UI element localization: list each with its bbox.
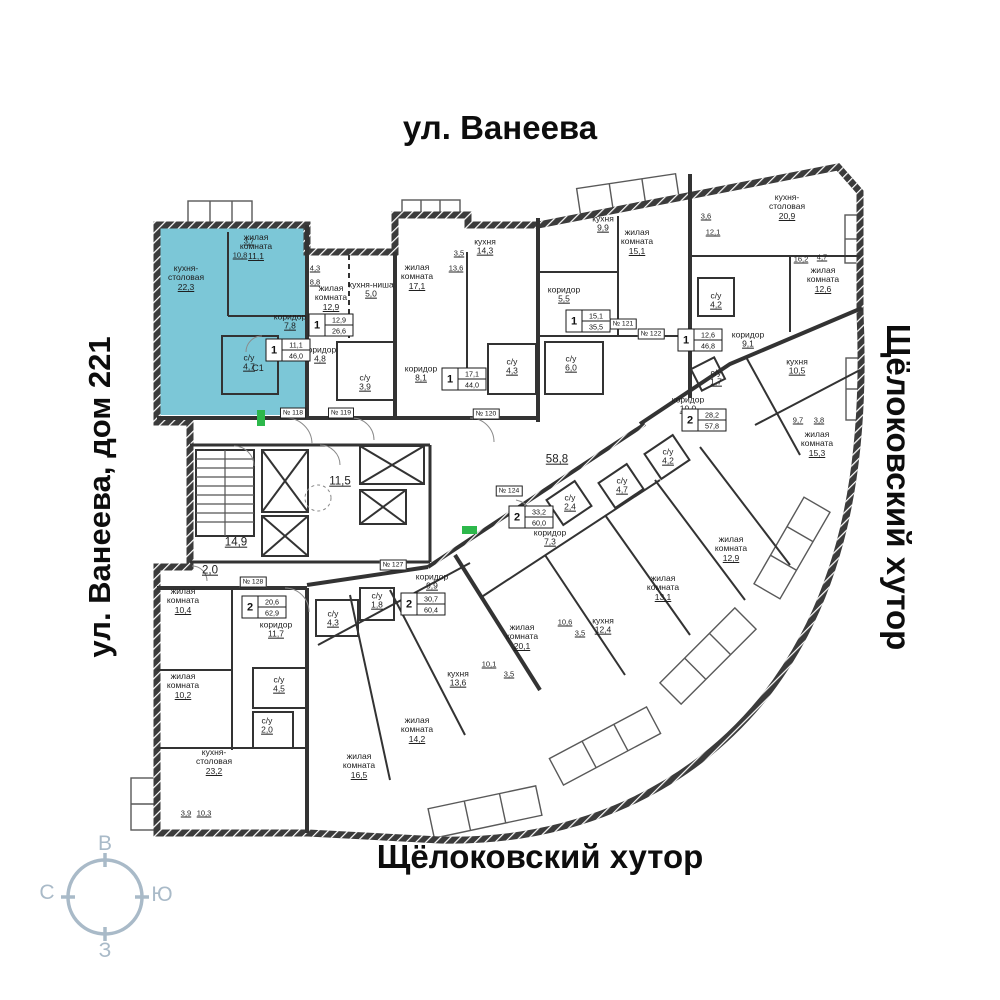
dimension-label: 8,8: [310, 278, 320, 287]
apartment-badge[interactable]: 233,260,0: [509, 506, 554, 529]
room-label: с/у2,0: [261, 717, 273, 736]
room-label: с/у2,4: [564, 494, 576, 513]
dimension-label: 10,6: [558, 618, 573, 627]
room-label: с/у4,3: [327, 610, 339, 629]
dimension-label: 10,8: [233, 251, 248, 260]
dimension-label: 4,3: [310, 264, 320, 273]
dimension-label: 3,5: [575, 629, 585, 638]
room-label: жилая комната12,9: [715, 535, 747, 563]
dimension-label: 10,1: [482, 660, 497, 669]
room-label: жилая комната12,6: [807, 266, 839, 294]
door-number-tag: № 119: [328, 408, 354, 419]
door-number-tag: № 128: [240, 577, 267, 588]
room-label: кухня12,4: [592, 617, 614, 636]
room-label: с/у4,2: [662, 448, 674, 467]
dimension-label: 3,5: [454, 249, 464, 258]
compass-letter-north: С: [39, 881, 54, 905]
room-label: кухня- столовая23,2: [196, 748, 232, 776]
door-number-tag: № 120: [473, 409, 500, 420]
dimension-label: 16,2: [794, 255, 809, 264]
room-label: с/у3,9: [359, 374, 371, 393]
room-label: с/у1,7: [710, 369, 722, 388]
room-label: коридор9,9: [416, 573, 448, 592]
room-label: с/у1,8: [371, 592, 383, 611]
compass-rose: [61, 853, 149, 941]
room-label: коридор7,8: [274, 313, 306, 332]
compass-letter-west: З: [99, 939, 112, 963]
room-label: 2,0: [202, 565, 218, 578]
dimension-label: 3,7: [244, 237, 254, 246]
room-label: с/у4,3: [506, 358, 518, 377]
exit-sign-icon: [257, 410, 265, 426]
room-label: жилая комната10,4: [167, 587, 199, 615]
room-label: с/у6,0: [565, 355, 577, 374]
door-number-tag: № 122: [638, 329, 665, 340]
apartment-badge[interactable]: 230,760,4: [401, 593, 446, 616]
street-label-left: ул. Ванеева, дом 221: [82, 336, 118, 657]
apartment-badge[interactable]: 111,146,0: [266, 339, 311, 362]
compass-letter-south: Ю: [151, 883, 172, 907]
dimension-label: 3,6: [701, 212, 711, 221]
room-label: жилая комната14,2: [401, 716, 433, 744]
floor-plan-page: ул. Ванеева ул. Ванеева, дом 221 Щёлоков…: [0, 0, 1000, 1000]
room-label: коридор11,7: [260, 621, 292, 640]
room-label: жилая комната13,1: [647, 574, 679, 602]
room-label: жилая комната10,2: [167, 672, 199, 700]
room-label: жилая комната17,1: [401, 263, 433, 291]
dimension-label: 3,9: [181, 809, 191, 818]
apartment-badge[interactable]: 115,135,5: [566, 310, 611, 333]
apartment-badge[interactable]: 112,646,8: [678, 329, 723, 352]
street-label-right: Щёлоковский хутор: [879, 324, 917, 651]
apartment-badge[interactable]: 228,257,8: [682, 409, 727, 432]
room-label: с/у4,5: [273, 676, 285, 695]
room-label: жилая комната12,9: [315, 284, 347, 312]
room-label: кухня-ниша5,0: [348, 281, 393, 300]
room-label: жилая комната15,1: [621, 228, 653, 256]
door-number-tag: № 121: [610, 319, 637, 330]
unit-label: С1: [252, 363, 264, 373]
dimension-label: 9,7: [793, 416, 803, 425]
room-label: с/у4,7: [616, 477, 628, 496]
room-label: с/у4,2: [710, 292, 722, 311]
door-number-tag: № 118: [280, 408, 306, 419]
room-label: коридор7,3: [534, 529, 566, 548]
apartment-badge[interactable]: 220,662,9: [242, 596, 287, 619]
room-label: коридор9,1: [732, 331, 764, 350]
room-label: 14,9: [225, 537, 247, 550]
room-label: 58,8: [546, 454, 568, 467]
dimension-label: 10,3: [197, 809, 212, 818]
room-label: кухня9,9: [592, 215, 614, 234]
compass-letter-east: В: [98, 832, 112, 856]
room-label: кухня14,3: [474, 238, 496, 257]
door-number-tag: № 127: [380, 560, 407, 571]
dimension-label: 12,1: [706, 228, 721, 237]
room-label: 11,5: [329, 476, 351, 489]
street-label-top: ул. Ванеева: [403, 109, 597, 147]
room-label: жилая комната15,3: [801, 430, 833, 458]
dimension-label: 3,5: [504, 670, 514, 679]
room-label: кухня- столовая22,3: [168, 264, 204, 292]
room-label: кухня13,6: [447, 670, 469, 689]
room-label: коридор8,1: [405, 365, 437, 384]
apartment-badge[interactable]: 112,926,6: [309, 314, 354, 337]
room-label: жилая комната20,1: [506, 623, 538, 651]
room-label: кухня10,5: [786, 358, 808, 377]
room-label: жилая комната16,5: [343, 752, 375, 780]
dimension-label: 3,8: [814, 416, 824, 425]
dimension-label: 4,7: [817, 253, 827, 262]
apartment-badge[interactable]: 117,144,0: [442, 368, 487, 391]
dimension-label: 13,6: [449, 264, 464, 273]
street-label-bottom: Щёлоковский хутор: [377, 838, 704, 876]
room-label: кухня- столовая20,9: [769, 193, 805, 221]
room-label: коридор5,5: [548, 286, 580, 305]
door-number-tag: № 124: [496, 486, 523, 497]
exit-sign-icon: [462, 526, 477, 534]
